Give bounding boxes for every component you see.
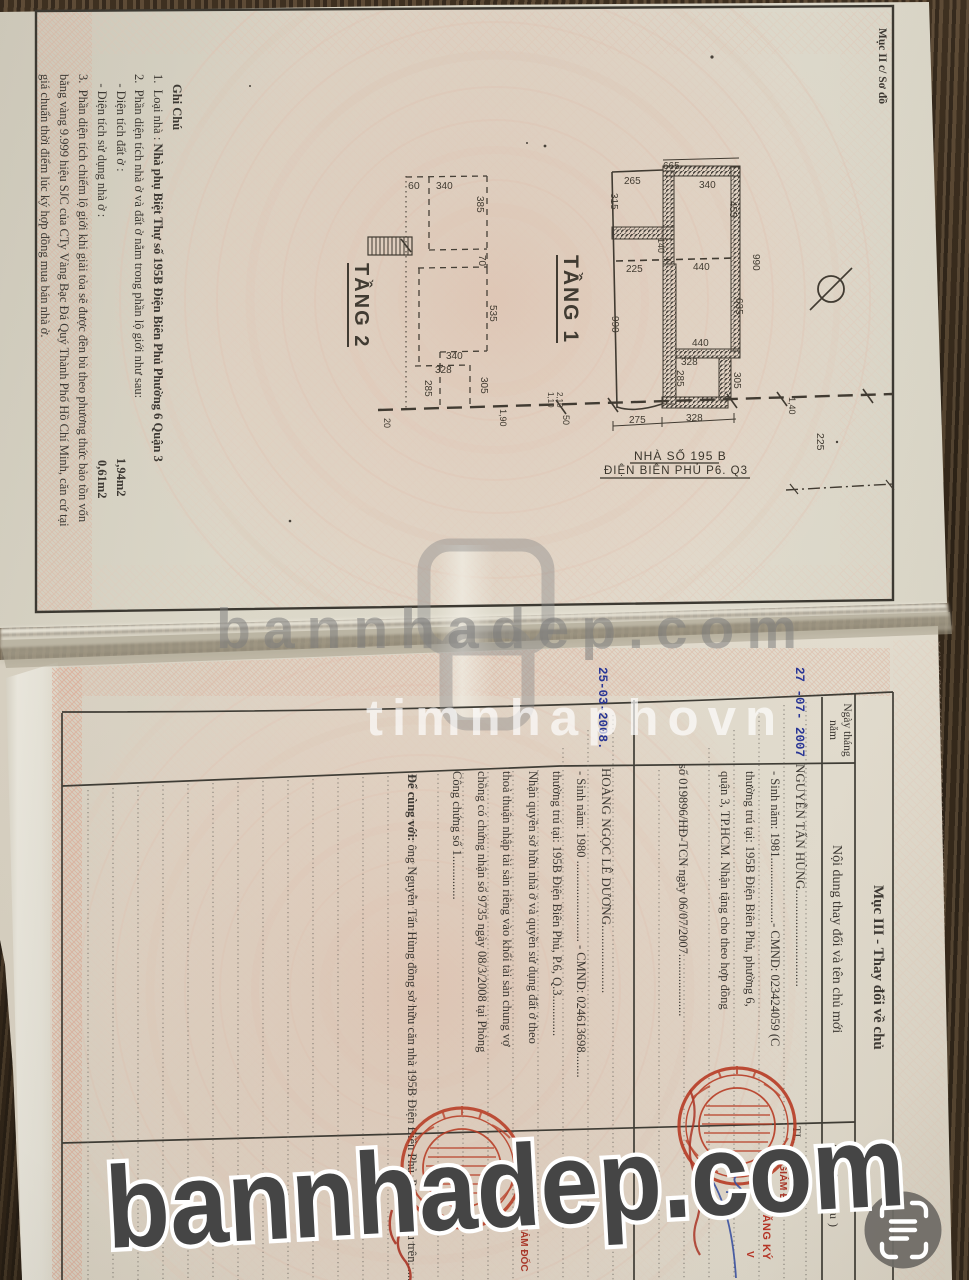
svg-text:bannhadep.com: bannhadep.com: [102, 1100, 908, 1273]
